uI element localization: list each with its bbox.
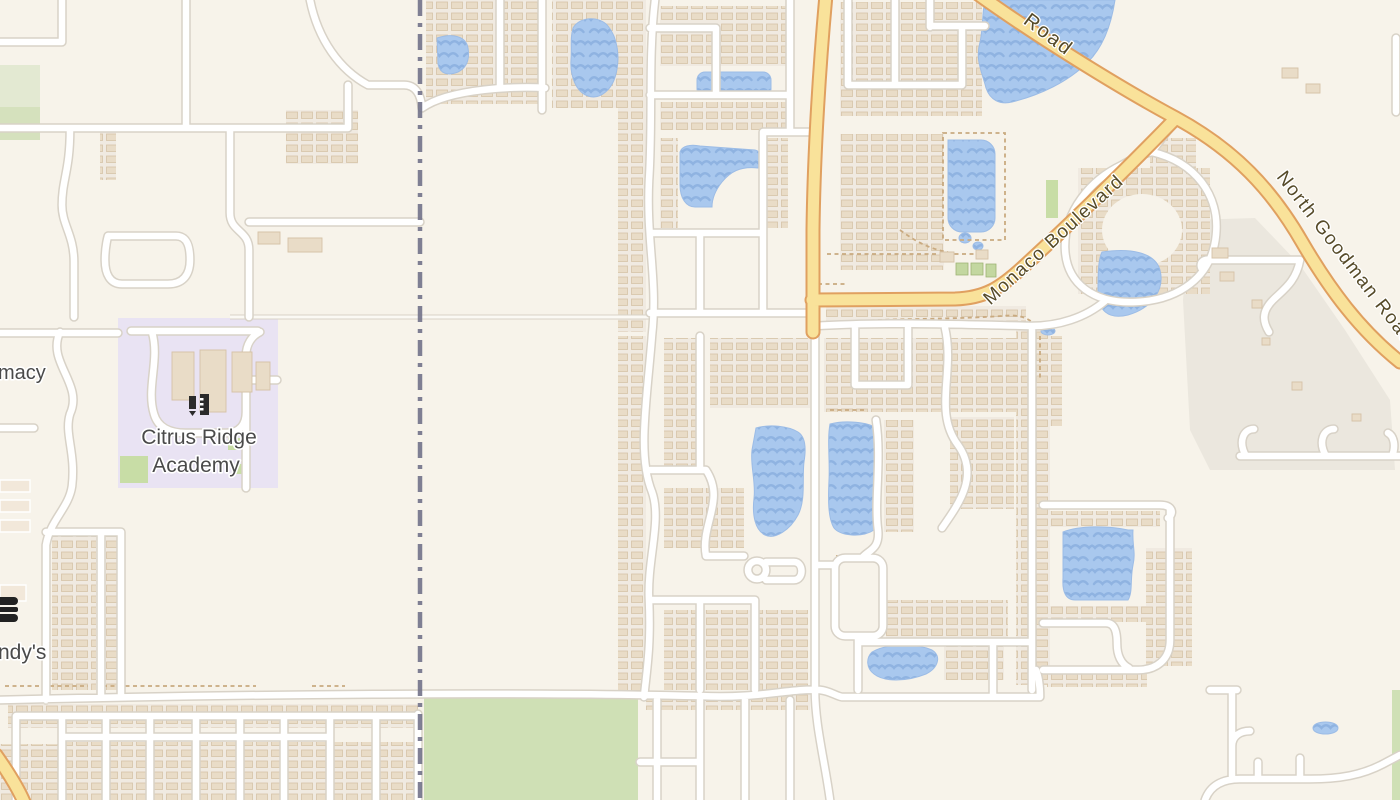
school-icon-notch [200,408,204,411]
garden-plots [956,263,996,277]
burger-patty [0,607,18,612]
scrub-green [0,65,40,107]
school-icon-notch [200,403,204,406]
school-label-line1[interactable]: Citrus Ridge [141,426,257,449]
burger-bun-bottom [0,614,18,622]
wendys-label[interactable]: ndy's [0,641,46,664]
burger-icon[interactable] [0,597,18,622]
burger-bun-top [0,597,18,605]
school-label-line2[interactable]: Academy [152,454,240,477]
map-canvas[interactable]: macy Citrus Ridge Academy ndy's Road Mon… [0,0,1400,800]
map-viewport[interactable]: macy Citrus Ridge Academy ndy's Road Mon… [0,0,1400,800]
school-icon-part [189,396,196,409]
pharmacy-label[interactable]: macy [0,362,46,384]
school-icon-notch [200,398,204,401]
